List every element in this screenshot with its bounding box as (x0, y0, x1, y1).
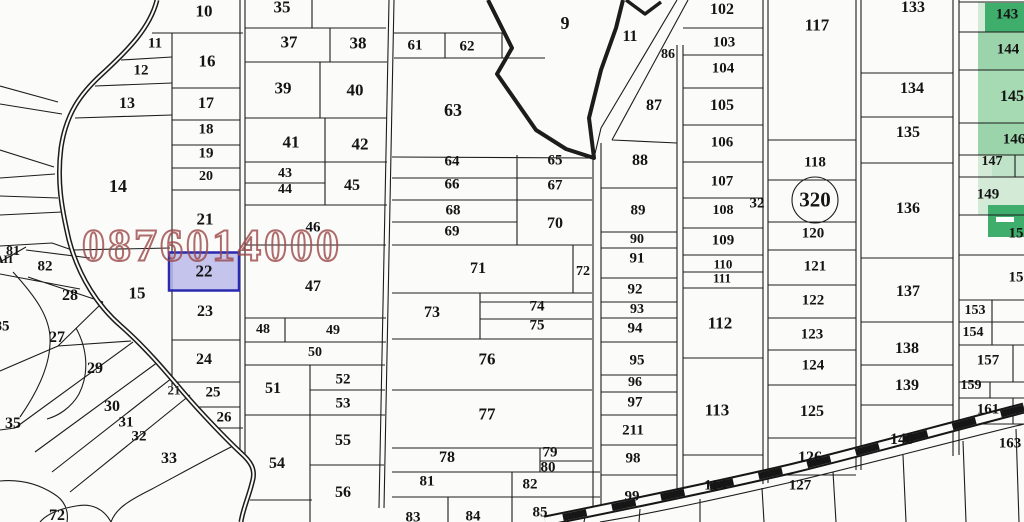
parcel-label-107: 107 (711, 175, 734, 190)
parcel-label-93: 93 (630, 303, 644, 317)
parcel-label-147: 147 (982, 155, 1003, 169)
parcel-label-52: 52 (336, 373, 351, 388)
parcel-label-51: 51 (265, 381, 281, 397)
parcel-label-78: 78 (439, 450, 455, 466)
parcel-label-40: 40 (347, 82, 364, 99)
parcel-label-83: 83 (406, 511, 421, 522)
parcel-label-127: 127 (789, 479, 812, 494)
parcel-label-62: 62 (460, 40, 475, 55)
parcel-label-135: 135 (896, 125, 920, 141)
parcel-label-99: 99 (625, 490, 640, 505)
parcel-label-104: 104 (712, 62, 735, 77)
parcel-label-21: 21 (168, 384, 181, 397)
parcel-label-108: 108 (713, 204, 734, 218)
parcel-label-70: 70 (547, 216, 563, 232)
parcel-label-23: 23 (197, 304, 213, 320)
parcel-label-159: 159 (961, 379, 982, 393)
parcel-label-18: 18 (199, 123, 214, 138)
parcel-label-110: 110 (714, 258, 733, 271)
parcel-label-28: 28 (62, 288, 78, 304)
parcel-label-48: 48 (256, 323, 270, 337)
parcel-label-84: 84 (466, 510, 481, 522)
parcel-label-88: 88 (632, 153, 648, 169)
parcel-label-79: 79 (543, 446, 558, 461)
parcel-label-136: 136 (896, 201, 920, 217)
parcel-label-98: 98 (626, 452, 641, 467)
parcel-label-42: 42 (352, 136, 369, 153)
parcel-label-55: 55 (335, 433, 351, 449)
parcel-label-87: 87 (646, 98, 662, 114)
parcel-label-74: 74 (530, 300, 545, 315)
parcel-label-35: 35 (274, 0, 291, 16)
parcel-label-91: 91 (630, 252, 645, 267)
parcel-label-123: 123 (801, 328, 824, 343)
parcel-label-20: 20 (199, 170, 213, 184)
parcel-label-124: 124 (802, 359, 825, 374)
parcel-label-139: 139 (895, 378, 919, 394)
parcel-label-44: 44 (278, 183, 292, 197)
parcel-label-35: 35 (5, 416, 21, 432)
parcel-label-19: 19 (199, 147, 214, 162)
parcel-label-72: 72 (576, 265, 590, 279)
parcel-label-75: 75 (530, 319, 545, 334)
sheet-number-label: 320 (799, 188, 831, 213)
parcel-label-106: 106 (711, 136, 734, 151)
parcel-label-97: 97 (628, 396, 643, 411)
parcel-label-33: 33 (161, 451, 177, 467)
parcel-label-134: 134 (900, 81, 924, 97)
parcel-label-54: 54 (269, 456, 285, 472)
parcel-label-144: 144 (997, 43, 1020, 58)
parcel-label-38: 38 (350, 35, 367, 52)
parcel-label-153: 153 (965, 304, 986, 318)
parcel-label-121: 121 (804, 260, 827, 275)
parcel-label-14: 14 (109, 177, 127, 195)
parcel-label-118: 118 (804, 156, 826, 171)
parcel-label-15: 15 (1009, 271, 1024, 286)
parcel-label-86: 86 (661, 48, 675, 62)
parcel-label-102: 102 (710, 2, 734, 18)
parcel-label-47: 47 (305, 279, 321, 295)
parcel-label-114: 114 (704, 479, 726, 494)
parcel-label-211: 211 (622, 424, 644, 439)
parcel-label-69: 69 (445, 225, 460, 240)
parcel-label-56: 56 (335, 485, 351, 501)
cadastral-map: 1035111637381239401317181941422043444514… (0, 0, 1024, 522)
parcel-label-111: 111 (713, 272, 731, 285)
parcel-label-92: 92 (628, 283, 643, 298)
parcel-label-76: 76 (479, 351, 496, 368)
parcel-label-117: 117 (805, 17, 830, 34)
parcel-label-45: 45 (344, 178, 360, 194)
parcel-label-95: 95 (630, 354, 645, 369)
parcel-label-15: 15 (1009, 227, 1024, 242)
parcel-label-53: 53 (336, 397, 351, 412)
parcel-label-АП: АП (0, 253, 13, 265)
parcel-label-140: 140 (890, 432, 914, 448)
parcel-label-103: 103 (713, 36, 736, 51)
parcel-label-13: 13 (119, 96, 135, 112)
parcel-label-15: 15 (129, 285, 146, 302)
parcel-label-89: 89 (631, 204, 646, 219)
parcel-label-157: 157 (977, 354, 1000, 369)
parcel-label-154: 154 (963, 326, 984, 340)
parcel-label-68: 68 (446, 204, 461, 219)
parcel-label-126: 126 (798, 450, 822, 466)
parcel-label-85: 85 (0, 320, 10, 335)
parcel-label-105: 105 (710, 98, 734, 114)
parcel-label-82: 82 (523, 478, 538, 493)
parcel-label-37: 37 (281, 34, 298, 51)
parcel-label-16: 16 (199, 53, 216, 70)
parcel-label-32: 32 (750, 197, 765, 212)
parcel-label-63: 63 (444, 101, 462, 119)
parcel-label-125: 125 (800, 404, 824, 420)
parcel-label-90: 90 (630, 233, 644, 247)
parcel-label-163: 163 (999, 437, 1022, 452)
parcel-label-11: 11 (148, 37, 162, 52)
parcel-label-81: 81 (420, 475, 435, 490)
parcel-label-77: 77 (479, 406, 496, 423)
parcel-label-32: 32 (132, 430, 147, 445)
parcel-label-49: 49 (326, 324, 340, 338)
watermark-phone: 0876014000 (82, 219, 342, 272)
parcel-label-109: 109 (712, 234, 735, 249)
parcel-label-80: 80 (541, 461, 556, 476)
parcel-label-122: 122 (802, 294, 825, 309)
parcel-label-67: 67 (548, 179, 563, 194)
parcel-label-94: 94 (628, 322, 643, 337)
parcel-label-149: 149 (977, 188, 1000, 203)
parcel-label-65: 65 (548, 154, 563, 169)
parcel-label-17: 17 (198, 96, 214, 112)
parcel-label-120: 120 (802, 227, 825, 242)
parcel-label-39: 39 (275, 80, 292, 97)
parcel-label-29: 29 (87, 361, 103, 377)
parcel-label-96: 96 (628, 376, 642, 390)
parcel-label-64: 64 (445, 155, 460, 170)
parcel-label-30: 30 (104, 399, 120, 415)
parcel-label-27: 27 (49, 330, 65, 346)
parcel-label-133: 133 (901, 0, 925, 16)
parcel-label-112: 112 (708, 315, 733, 332)
parcel-label-12: 12 (134, 64, 149, 79)
parcel-label-66: 66 (445, 178, 460, 193)
parcel-label-145: 145 (1000, 89, 1024, 105)
parcel-label-143: 143 (996, 8, 1019, 23)
parcel-label-138: 138 (895, 341, 919, 357)
parcel-label-10: 10 (196, 3, 213, 20)
parcel-label-71: 71 (470, 261, 486, 277)
parcel-label-50: 50 (308, 346, 322, 360)
parcel-label-9: 9 (561, 14, 570, 32)
parcel-label-61: 61 (408, 39, 423, 54)
parcel-label-161: 161 (977, 403, 1000, 418)
parcel-label-41: 41 (283, 134, 300, 151)
parcel-label-24: 24 (196, 352, 212, 368)
parcel-label-82: 82 (38, 260, 53, 275)
parcel-label-11: 11 (622, 29, 637, 45)
parcel-label-72: 72 (49, 508, 65, 522)
parcel-label-137: 137 (896, 284, 920, 300)
parcel-label-146: 146 (1003, 133, 1024, 148)
parcel-label-26: 26 (217, 411, 232, 426)
parcel-label-113: 113 (705, 402, 730, 419)
parcel-label-25: 25 (206, 386, 221, 401)
parcel-label-85: 85 (533, 506, 548, 521)
parcel-label-73: 73 (424, 305, 440, 321)
parcel-label-43: 43 (278, 167, 292, 181)
